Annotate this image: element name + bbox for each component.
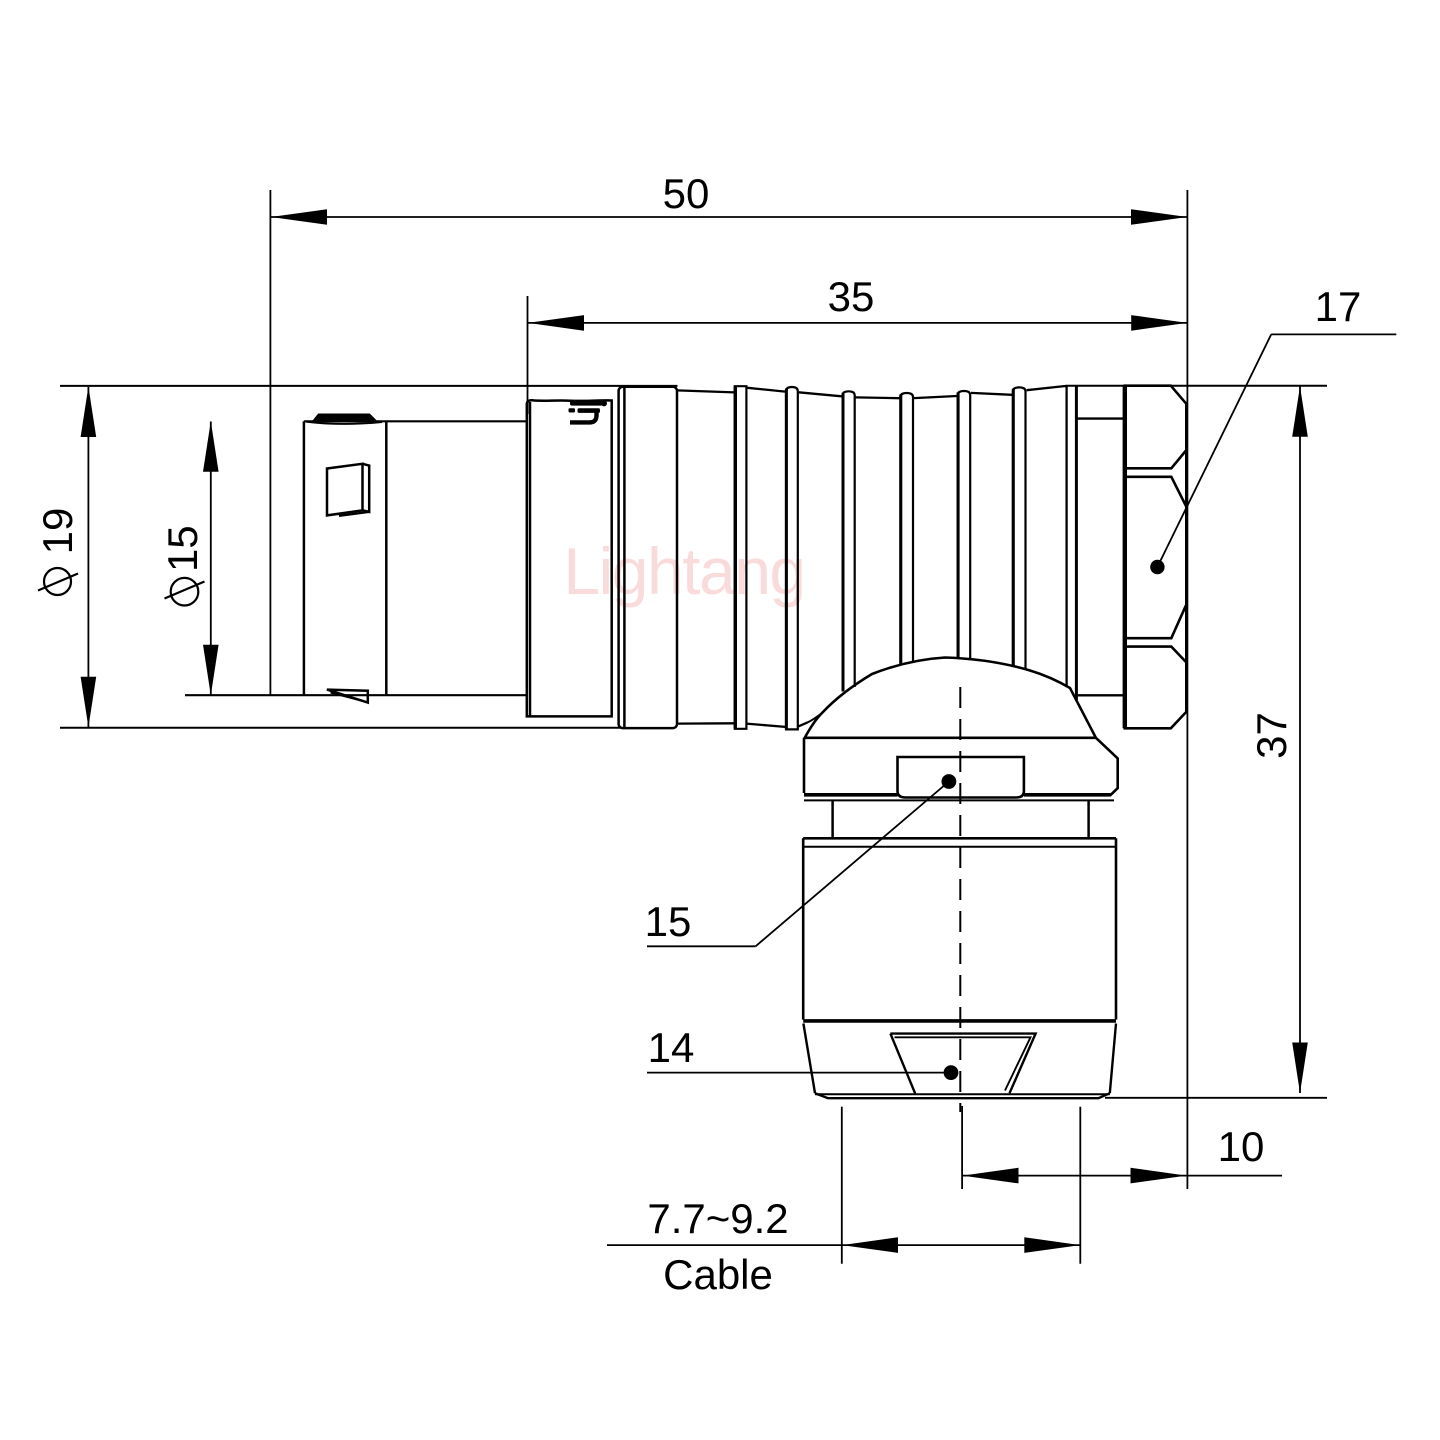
svg-text:15: 15 xyxy=(159,525,206,572)
svg-text:17: 17 xyxy=(1315,283,1362,330)
svg-text:14: 14 xyxy=(648,1024,695,1071)
svg-text:35: 35 xyxy=(828,273,875,320)
svg-text:15: 15 xyxy=(645,898,692,945)
svg-text:37: 37 xyxy=(1248,712,1295,759)
svg-text:19: 19 xyxy=(34,508,81,555)
svg-text:Lightang: Lightang xyxy=(563,534,804,608)
svg-text:Cable: Cable xyxy=(663,1251,773,1298)
svg-text:10: 10 xyxy=(1218,1123,1265,1170)
svg-text:7.7~9.2: 7.7~9.2 xyxy=(647,1195,788,1242)
svg-text:50: 50 xyxy=(663,170,710,217)
